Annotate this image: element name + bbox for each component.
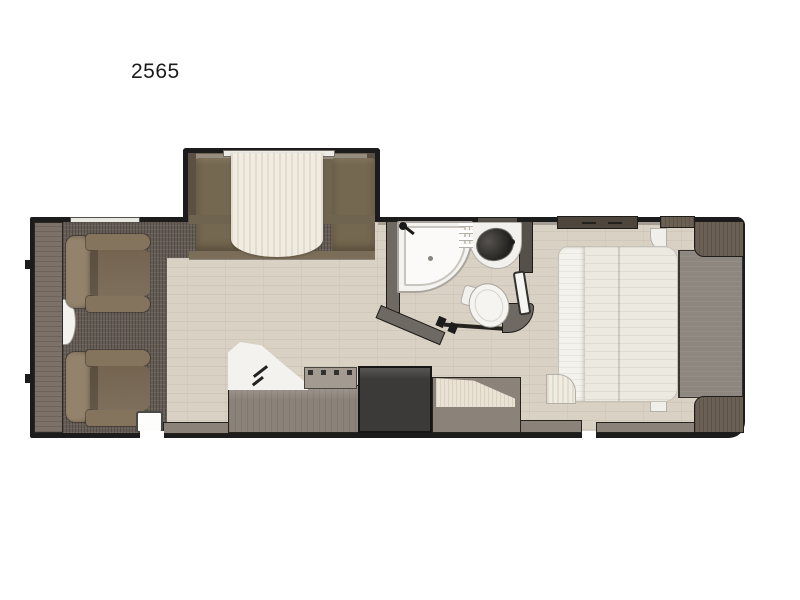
shower-head-icon (399, 222, 407, 230)
bed-platform (678, 250, 743, 398)
queen-bed (558, 246, 678, 402)
sofa-cushion-right (332, 158, 375, 253)
chair-armrest (86, 234, 150, 250)
slide-side-wall-left (188, 153, 196, 222)
refrigerator (358, 366, 432, 433)
floorplan-canvas: 2565 (0, 0, 800, 600)
chair-seat (90, 250, 150, 296)
nightstand-rear (694, 396, 744, 433)
sink-faucet (509, 239, 515, 245)
lower-wall-segment (596, 422, 695, 433)
bedroom-overhead-cabinet (557, 216, 638, 229)
theater-seat-front (66, 234, 153, 312)
entry-door-opening (140, 431, 164, 439)
kitchen-base-cabinet (228, 385, 361, 433)
shower-drain (428, 256, 433, 261)
shower-shelves (459, 223, 473, 251)
front-window (70, 217, 140, 223)
window-opening (582, 431, 596, 439)
entry-door-swing (136, 411, 163, 433)
bedroom-wall-cabinet (660, 216, 695, 228)
lower-wall-segment (163, 422, 229, 434)
front-cabinet (34, 222, 63, 433)
wall-joint-mark (25, 374, 30, 383)
nightstand-front (694, 221, 744, 257)
chair-armrest (86, 296, 150, 312)
chair-armrest (86, 350, 150, 366)
bed-center-seam (618, 247, 620, 401)
model-number-label: 2565 (131, 60, 180, 84)
lower-wall-segment (520, 420, 582, 433)
murphy-bed-panel (231, 153, 323, 257)
cooktop-range (304, 367, 357, 389)
chair-seat (90, 366, 150, 410)
wall-joint-mark (25, 260, 30, 269)
